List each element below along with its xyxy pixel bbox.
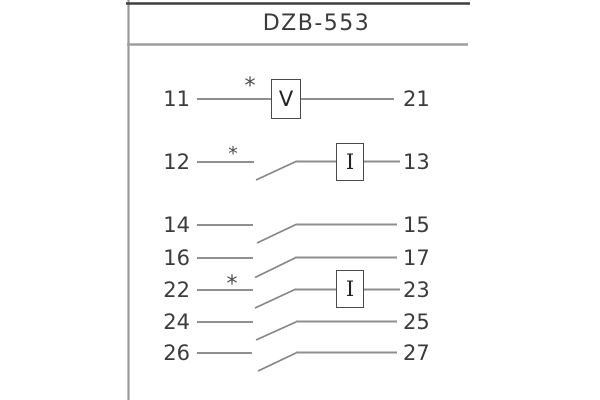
polarity-marker: *	[225, 145, 241, 164]
diagram-title: DZB-553	[127, 10, 470, 38]
terminal-27: 27	[403, 340, 451, 366]
terminal-11: 11	[148, 86, 190, 112]
current-coil-box-2: I	[336, 270, 364, 308]
terminal-24: 24	[148, 309, 190, 335]
coil-letter-v: V	[279, 87, 293, 111]
switch-contact	[257, 224, 297, 243]
terminal-22: 22	[148, 277, 190, 303]
diagram-lines	[0, 0, 600, 400]
terminal-12: 12	[148, 149, 190, 175]
switch-contact	[258, 353, 297, 372]
current-coil-box-1: I	[336, 143, 364, 181]
switch-contact	[255, 258, 296, 278]
voltage-coil-box: V	[271, 79, 301, 119]
terminal-13: 13	[403, 149, 451, 175]
terminal-15: 15	[403, 212, 451, 238]
coil-letter-i: I	[346, 277, 354, 301]
terminal-25: 25	[403, 309, 451, 335]
switch-contact	[255, 289, 296, 308]
switch-contact	[256, 322, 297, 341]
relay-terminal-diagram: DZB-553 11 * V 21 12 * I 13 14 15 16 17 …	[0, 0, 600, 400]
terminal-14: 14	[148, 212, 190, 238]
terminal-26: 26	[148, 340, 190, 366]
switch-contact	[256, 161, 297, 180]
polarity-marker: *	[224, 274, 240, 296]
terminal-16: 16	[148, 245, 190, 271]
terminal-23: 23	[403, 277, 451, 303]
terminal-17: 17	[403, 245, 451, 271]
terminal-21: 21	[403, 86, 451, 112]
polarity-marker: *	[242, 76, 258, 98]
coil-letter-i: I	[346, 150, 354, 174]
